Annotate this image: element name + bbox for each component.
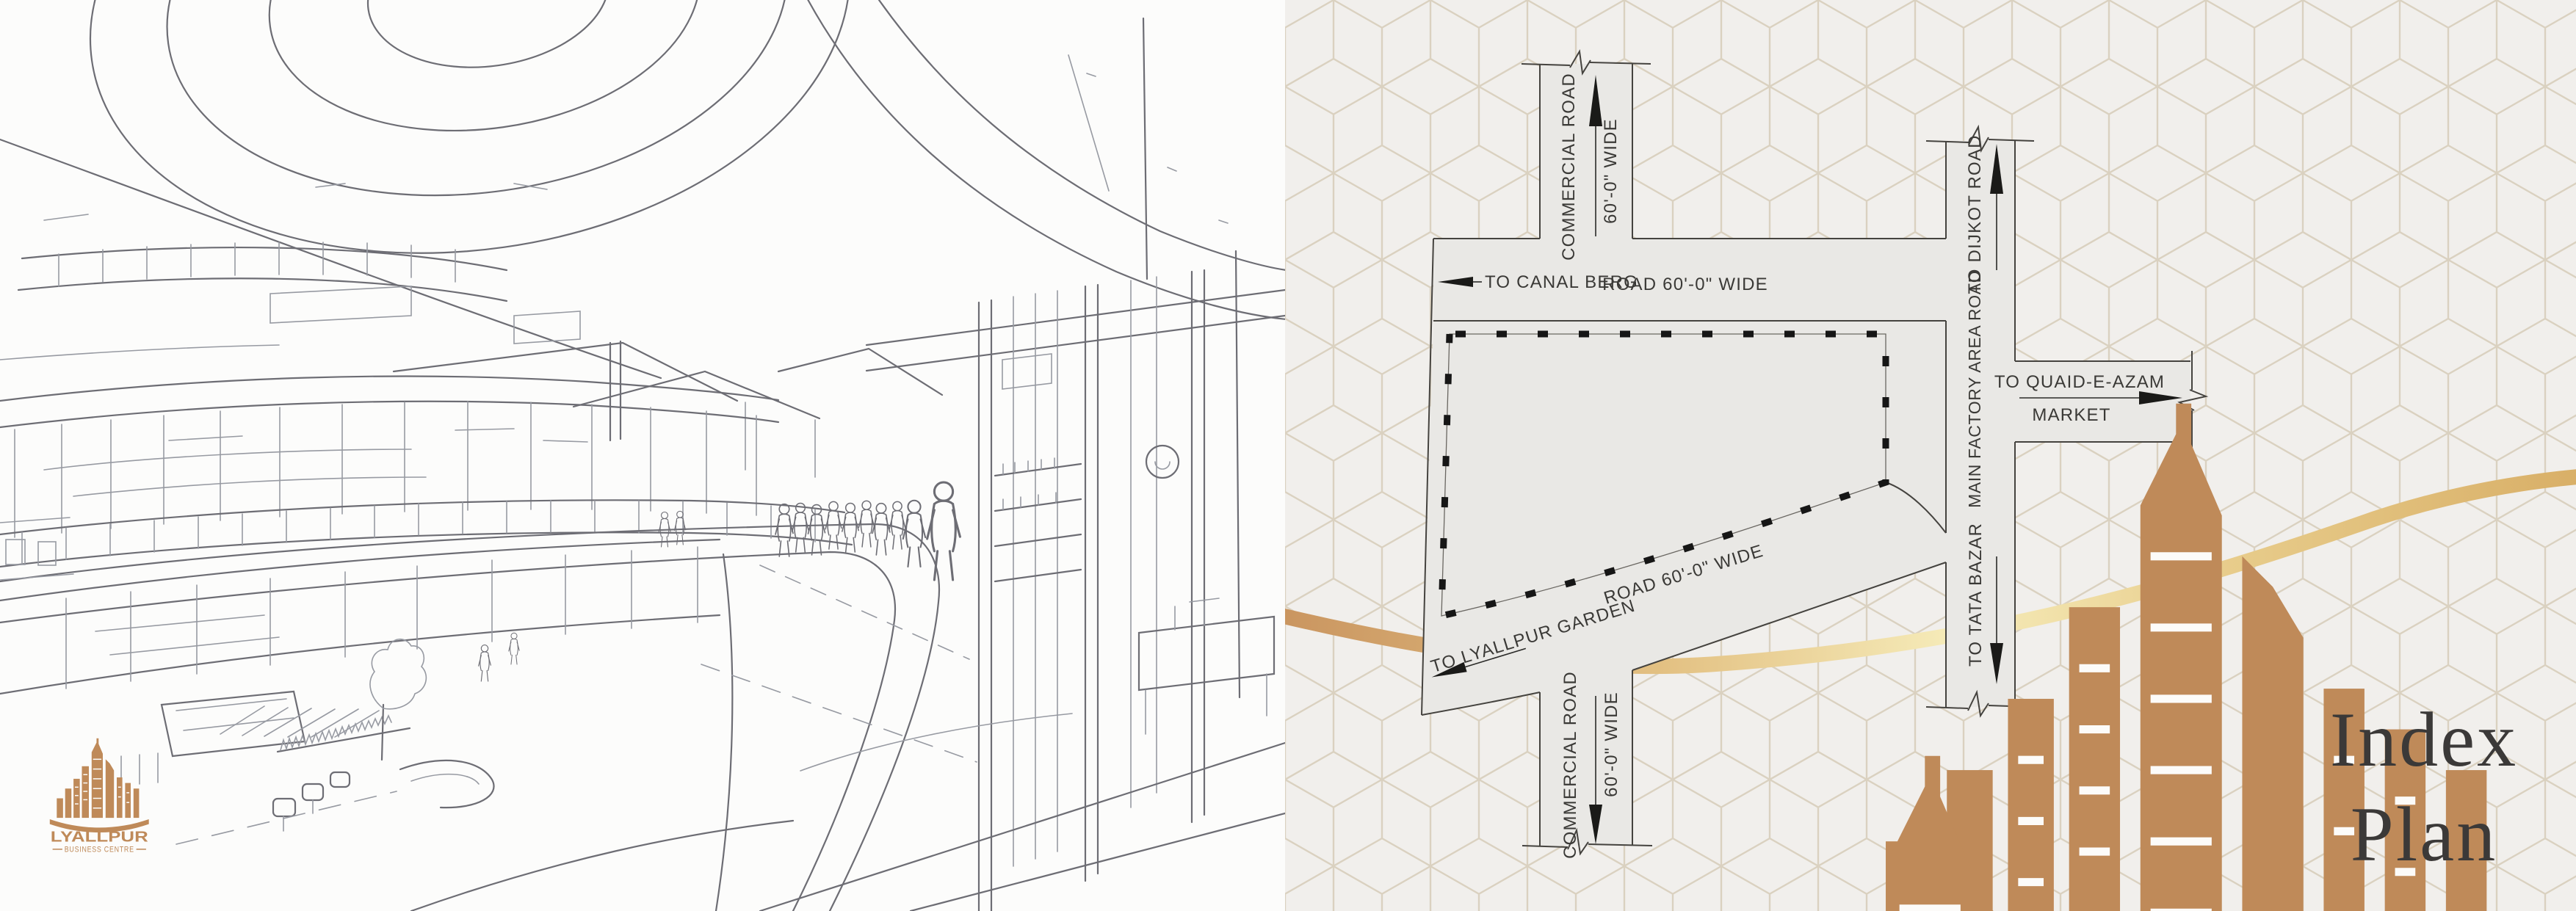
site-map: COMMERCIAL ROAD 60'-0" WIDE TO CANAL BER… bbox=[1285, 0, 2576, 911]
ceiling-sweep-sketch bbox=[804, 0, 1285, 371]
label-to-dijkot-road: TO DIJKOT ROAD bbox=[1965, 134, 1985, 294]
title-line-2: Plan bbox=[2351, 791, 2497, 877]
label-to-tata-bazar: TO TATA BAZAR bbox=[1966, 523, 1986, 667]
label-commercial-road-bottom: COMMERCIAL ROAD bbox=[1560, 671, 1580, 859]
interior-sketch-panel: LYALLPUR BUSINESS CENTRE bbox=[0, 0, 1285, 911]
label-commercial-road-top: COMMERCIAL ROAD bbox=[1559, 73, 1579, 261]
label-road-60-wide: ROAD 60'-0" WIDE bbox=[1602, 275, 1768, 294]
title-line-1: Index bbox=[2330, 697, 2518, 783]
label-commercial-width-bottom: 60'-0" WIDE bbox=[1602, 692, 1621, 797]
label-main-factory-area-road: MAIN FACTORY AREA ROAD bbox=[1965, 270, 1984, 508]
index-plan-panel: COMMERCIAL ROAD 60'-0" WIDE TO CANAL BER… bbox=[1285, 0, 2576, 911]
interior-sketch: LYALLPUR BUSINESS CENTRE bbox=[0, 0, 1285, 911]
ceiling-rings-sketch bbox=[0, 0, 882, 378]
canopy-sketch bbox=[394, 341, 942, 477]
brochure-page: LYALLPUR BUSINESS CENTRE bbox=[0, 0, 2576, 911]
label-to-quaid-e-azam: TO QUAID-E-AZAM bbox=[1994, 372, 2165, 392]
label-market: MARKET bbox=[2032, 405, 2110, 425]
label-commercial-width-top: 60'-0" WIDE bbox=[1601, 118, 1621, 224]
brand-logo bbox=[50, 738, 149, 854]
